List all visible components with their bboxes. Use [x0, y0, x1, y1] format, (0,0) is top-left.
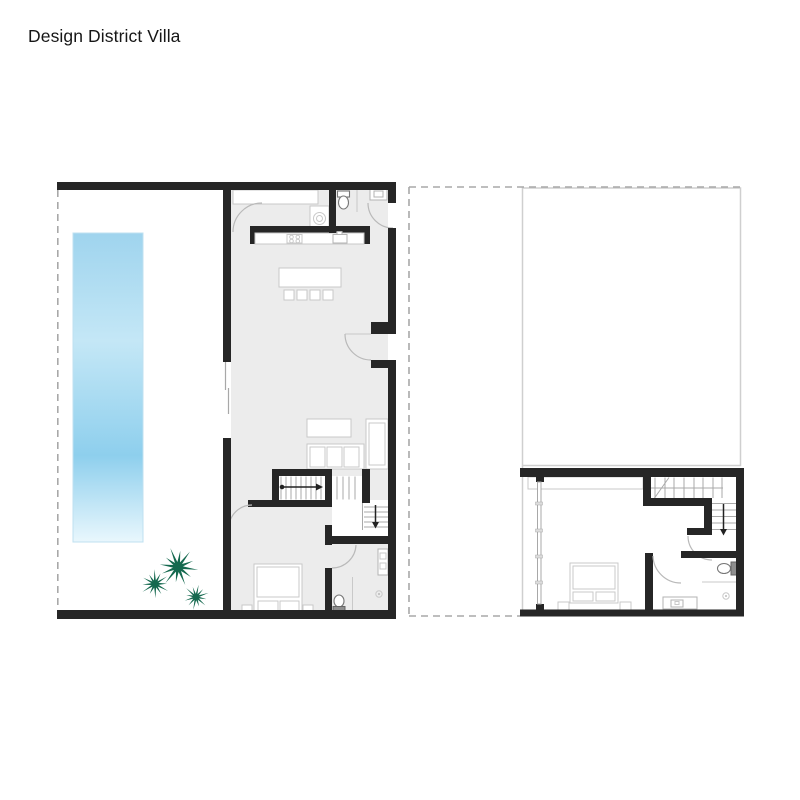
pillow	[280, 601, 299, 611]
sink-icon	[370, 189, 387, 200]
pool	[73, 233, 143, 542]
door-swing	[653, 556, 681, 583]
window-tick	[536, 529, 543, 532]
floorplan-drawing	[0, 0, 800, 800]
walls	[520, 468, 744, 617]
bed	[570, 563, 618, 603]
stool	[284, 290, 294, 300]
kitchen-island	[279, 268, 341, 300]
window-tick	[536, 581, 543, 584]
nightstand	[558, 602, 569, 610]
bed	[254, 564, 302, 612]
kitchen-counter-top	[233, 190, 318, 204]
ground-floor-plan	[57, 182, 396, 619]
palm-tree-icon	[181, 582, 212, 611]
nightstand	[620, 602, 631, 610]
staircase	[643, 477, 736, 560]
vanity-sink-icon	[663, 597, 697, 609]
stool	[297, 290, 307, 300]
floorplan-sheet: Design District Villa	[0, 0, 800, 800]
stool	[323, 290, 333, 300]
pillow	[573, 592, 593, 601]
palm-trees	[137, 547, 212, 612]
roof-void-outline	[523, 188, 741, 610]
vanity-sink-icon	[378, 549, 388, 575]
toilet-icon	[333, 595, 345, 613]
stool	[310, 290, 320, 300]
pillow	[596, 592, 615, 601]
sliding-door	[226, 362, 229, 414]
toilet-icon	[718, 562, 738, 575]
window-tick	[536, 502, 543, 505]
wardrobe	[528, 477, 643, 489]
interior-floor	[231, 190, 388, 610]
window-wall	[536, 475, 545, 611]
stair-down-arrow	[720, 504, 727, 536]
palm-tree-icon	[157, 547, 200, 587]
toilet-icon	[338, 191, 350, 209]
coffee-table	[307, 419, 351, 437]
pillow	[258, 601, 278, 611]
window-tick	[536, 555, 543, 558]
upper-floor-plan	[409, 187, 744, 617]
shower-drain-icon	[723, 593, 729, 599]
kitchen-bar	[250, 226, 370, 244]
palm-tree-icon	[137, 566, 174, 602]
bathroom	[645, 551, 744, 616]
